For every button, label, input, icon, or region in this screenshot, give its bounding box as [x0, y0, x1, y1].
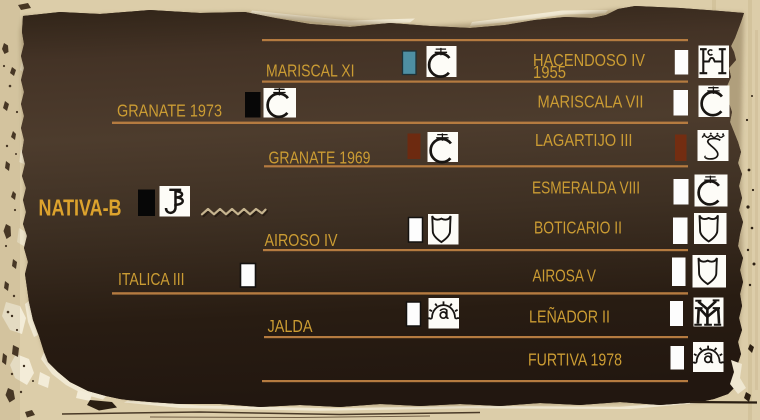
svg-text:MARISCALA VII: MARISCALA VII	[538, 92, 644, 112]
svg-text:ITALICA III: ITALICA III	[118, 269, 185, 289]
svg-text:LEÑADOR II: LEÑADOR II	[529, 306, 610, 327]
svg-text:JALDA: JALDA	[268, 316, 313, 336]
svg-text:NATIVA-B: NATIVA-B	[39, 195, 122, 221]
svg-text:GRANATE 1969: GRANATE 1969	[269, 148, 371, 168]
svg-text:FURTIVA 1978: FURTIVA 1978	[528, 350, 622, 370]
svg-text:MARISCAL XI: MARISCAL XI	[266, 61, 355, 81]
svg-text:AIROSA V: AIROSA V	[533, 266, 597, 286]
svg-text:GRANATE 1973: GRANATE 1973	[117, 100, 222, 120]
svg-text:LAGARTIJO III: LAGARTIJO III	[535, 130, 633, 150]
svg-text:ESMERALDA VIII: ESMERALDA VIII	[532, 178, 640, 198]
svg-text:1955: 1955	[533, 62, 566, 82]
svg-text:AIROSO IV: AIROSO IV	[265, 230, 338, 250]
svg-text:BOTICARIO II: BOTICARIO II	[534, 218, 622, 238]
